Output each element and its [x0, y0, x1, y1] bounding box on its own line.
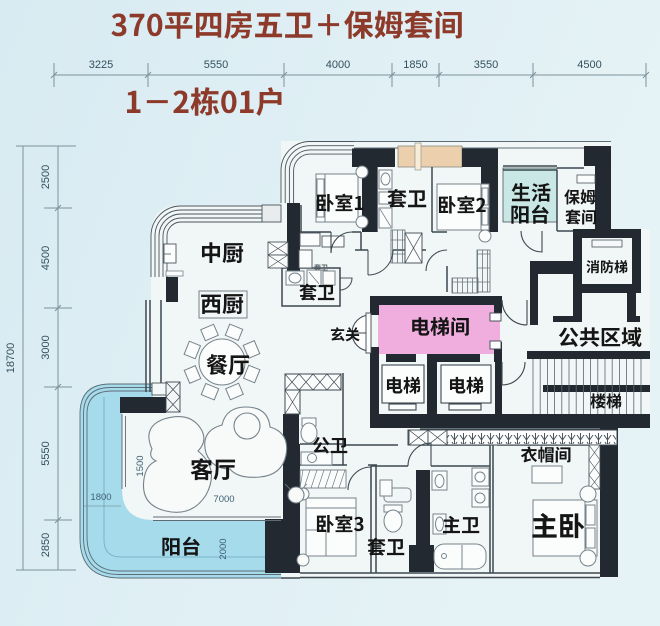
svg-text:1800: 1800	[90, 492, 111, 503]
svg-text:2500: 2500	[40, 165, 52, 189]
svg-text:18700: 18700	[5, 343, 17, 374]
svg-text:4000: 4000	[326, 59, 350, 71]
svg-text:3550: 3550	[474, 59, 498, 71]
svg-text:3000: 3000	[40, 335, 52, 359]
svg-text:2850: 2850	[40, 533, 52, 557]
svg-text:4500: 4500	[40, 246, 52, 270]
svg-text:1500: 1500	[135, 455, 146, 476]
svg-text:5550: 5550	[40, 441, 52, 465]
svg-text:7000: 7000	[213, 494, 234, 505]
svg-text:4500: 4500	[577, 59, 601, 71]
svg-text:3225: 3225	[89, 59, 113, 71]
svg-text:2000: 2000	[218, 538, 229, 559]
svg-text:1850: 1850	[403, 59, 427, 71]
svg-text:5550: 5550	[204, 59, 228, 71]
